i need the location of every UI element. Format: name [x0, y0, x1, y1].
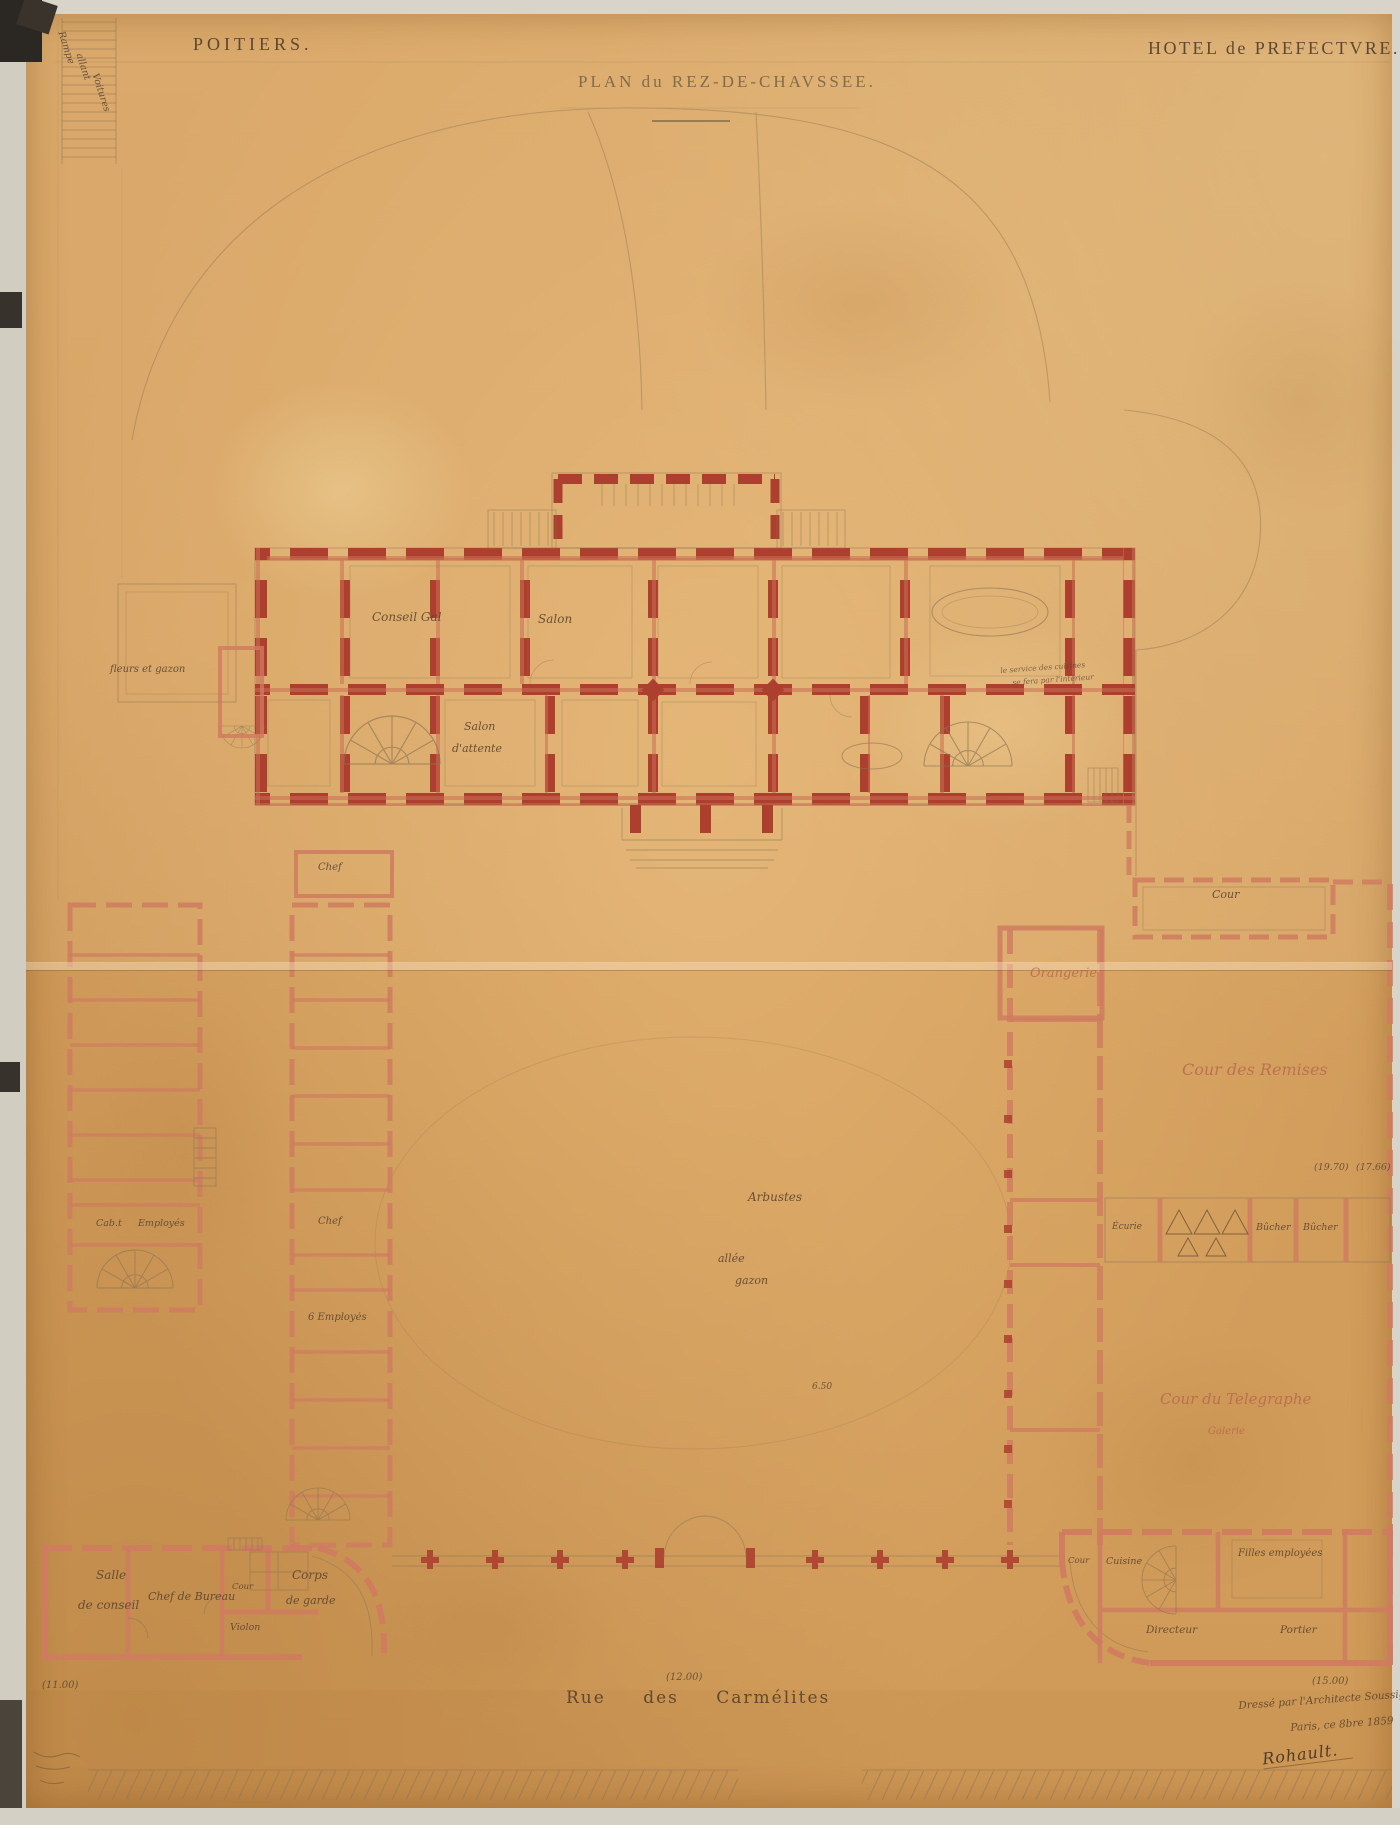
garden-label-arbustes: Arbustes [748, 1190, 802, 1204]
paper-fold [26, 962, 1392, 970]
room-label-cour-se: Cour [1068, 1556, 1089, 1566]
garden-fence [392, 1516, 1060, 1569]
dimension-1970: (19.70) [1314, 1162, 1349, 1173]
room-label-directeur: Directeur [1146, 1624, 1197, 1636]
court-label-galerie: Galerie [1208, 1426, 1245, 1437]
shed-row [1105, 1198, 1390, 1262]
carriage-ramp [62, 18, 116, 164]
northeast-court [1135, 880, 1390, 1663]
wing-label-cabt: Cab.t [96, 1218, 122, 1229]
city-title: POITIERS. [193, 34, 313, 55]
title-underline [652, 120, 730, 122]
room-label-salon-attente-2: d'attente [452, 742, 502, 755]
street-name: Rue des Carmélites [566, 1688, 830, 1708]
scanned-floor-plan: POITIERS. PLAN du REZ-DE-CHAVSSEE. HOTEL… [0, 0, 1400, 1825]
garden-label-fleurs-et-gazon: fleurs et gazon [110, 664, 185, 675]
west-inner-wing [194, 905, 390, 1545]
room-label-salon: Salon [538, 612, 572, 626]
room-label-salle-2: de conseil [78, 1598, 139, 1612]
wing-label-chef: Chef [318, 1216, 342, 1227]
dimension-12: (12.00) [666, 1672, 702, 1683]
room-label-salon-attente-1: Salon [464, 720, 495, 733]
room-label-salle-1: Salle [96, 1568, 126, 1582]
chef-annex [296, 852, 392, 896]
garden-label-gazon: gazon [735, 1274, 768, 1287]
room-label-chef-de-bureau: Chef de Bureau [148, 1590, 235, 1603]
north-pavilion [552, 473, 781, 548]
spiral-stair [924, 722, 1012, 766]
court-label-orangerie: Orangerie [1030, 966, 1097, 981]
building-title: HOTEL de PREFECTVRE. [1148, 38, 1400, 59]
paper-fold-line [26, 970, 1392, 971]
plan-title: PLAN du REZ-DE-CHAVSSEE. [578, 72, 876, 92]
room-label-corps-2: de garde [286, 1594, 335, 1607]
wing-label-employes: Employés [138, 1218, 185, 1229]
southeast-block [1062, 1524, 1390, 1665]
room-label-portier: Portier [1280, 1624, 1317, 1636]
street-curb [88, 1770, 1392, 1800]
main-building [220, 473, 1135, 896]
shed-label-ecurie: Écurie [1112, 1222, 1142, 1232]
east-wing [1000, 928, 1102, 1545]
dimension-1766: (17.66) [1356, 1162, 1391, 1173]
wood-pile-triangles [1166, 1210, 1248, 1256]
floor-plan-drawing [0, 0, 1400, 1825]
south-portico [622, 805, 782, 868]
corner-scribbles [34, 1752, 80, 1784]
spiral-stair [344, 716, 440, 764]
room-label-corps-1: Corps [292, 1568, 328, 1582]
court-label-cour-des-remises: Cour des Remises [1182, 1060, 1328, 1079]
room-label-cuisine: Cuisine [1106, 1556, 1142, 1567]
room-label-conseil-general: Conseil Gal [372, 610, 441, 624]
room-label-cour-sw: Cour [232, 1582, 253, 1592]
shed-label-bucher-2: Bûcher [1303, 1222, 1338, 1233]
wing-label-six-employes: 6 Employés [308, 1312, 367, 1323]
room-label-filles-employees: Filles employées [1238, 1548, 1322, 1559]
room-label-violon: Violon [230, 1622, 260, 1633]
shed-label-bucher-1: Bûcher [1256, 1222, 1291, 1233]
garden-label-allee: allée [718, 1252, 745, 1265]
gate-swing-arcs [664, 1516, 746, 1558]
court-label-cour-ne: Cour [1212, 888, 1239, 901]
room-label-chef: Chef [318, 862, 342, 873]
court-label-cour-du-telegraphe: Cour du Telegraphe [1160, 1390, 1311, 1408]
dimension-650: 6.50 [812, 1382, 832, 1392]
north-stairs [488, 510, 845, 548]
dimension-11: (11.00) [42, 1680, 78, 1691]
dimension-15: (15.00) [1312, 1676, 1348, 1687]
